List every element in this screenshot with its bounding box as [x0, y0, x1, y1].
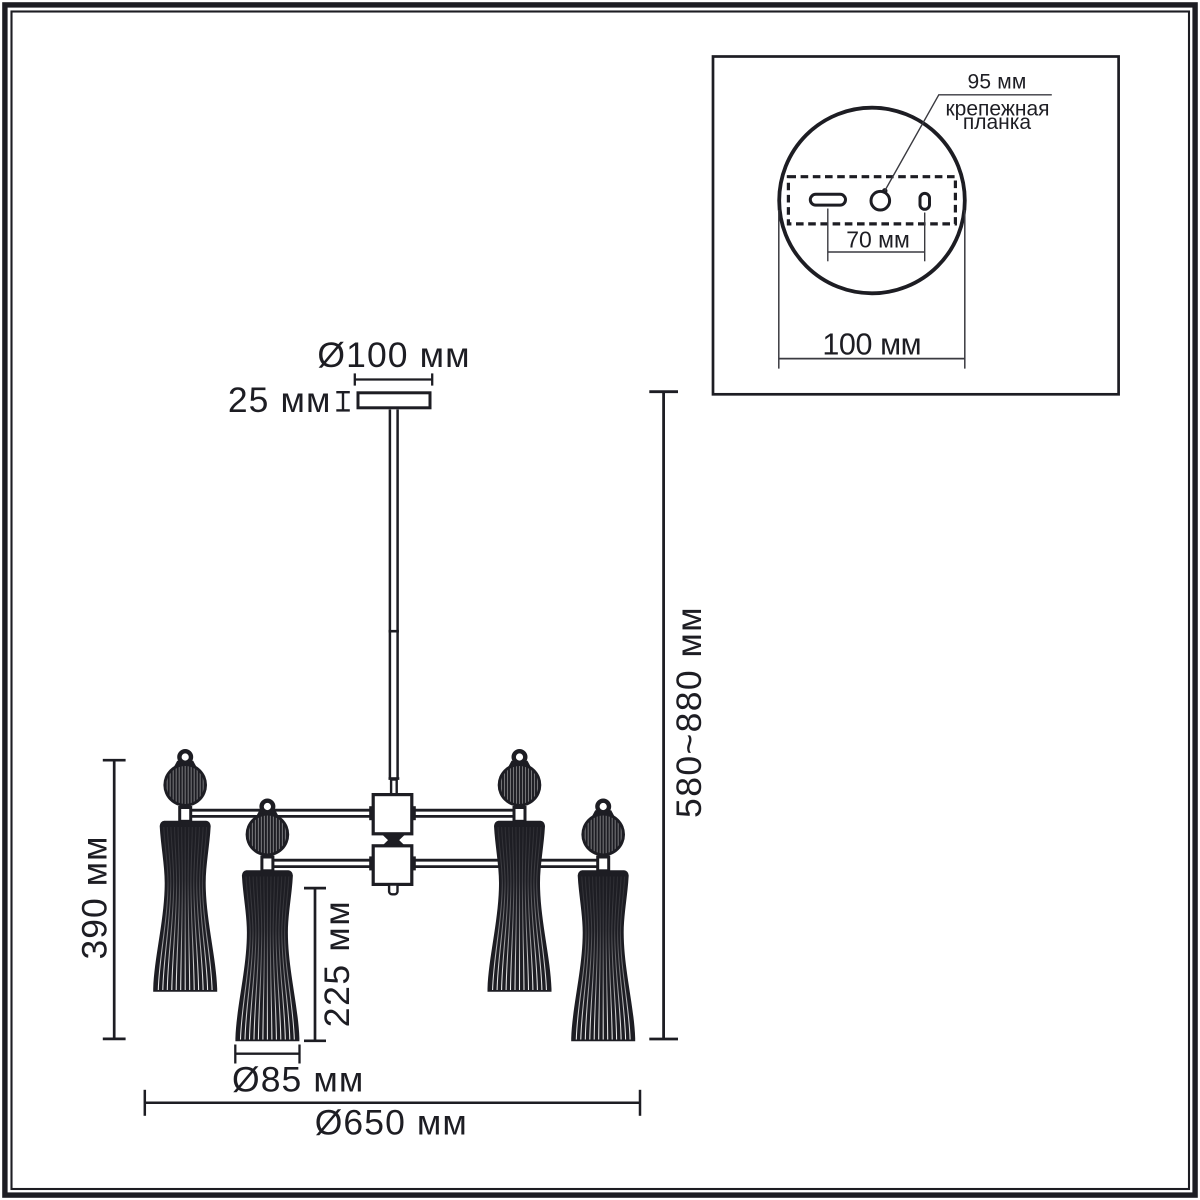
svg-text:25 мм: 25 мм [228, 380, 332, 420]
svg-text:Ø650 мм: Ø650 мм [315, 1102, 468, 1142]
svg-text:100 мм: 100 мм [822, 328, 921, 362]
svg-text:390 мм: 390 мм [74, 836, 114, 960]
svg-text:Ø85 мм: Ø85 мм [232, 1060, 364, 1100]
svg-text:95 мм: 95 мм [967, 71, 1026, 94]
svg-text:Ø100 мм: Ø100 мм [317, 335, 470, 375]
svg-text:планка: планка [963, 111, 1032, 134]
svg-text:70 мм: 70 мм [846, 226, 910, 252]
svg-text:580~880 мм: 580~880 мм [669, 606, 709, 818]
svg-text:225 мм: 225 мм [317, 900, 357, 1028]
